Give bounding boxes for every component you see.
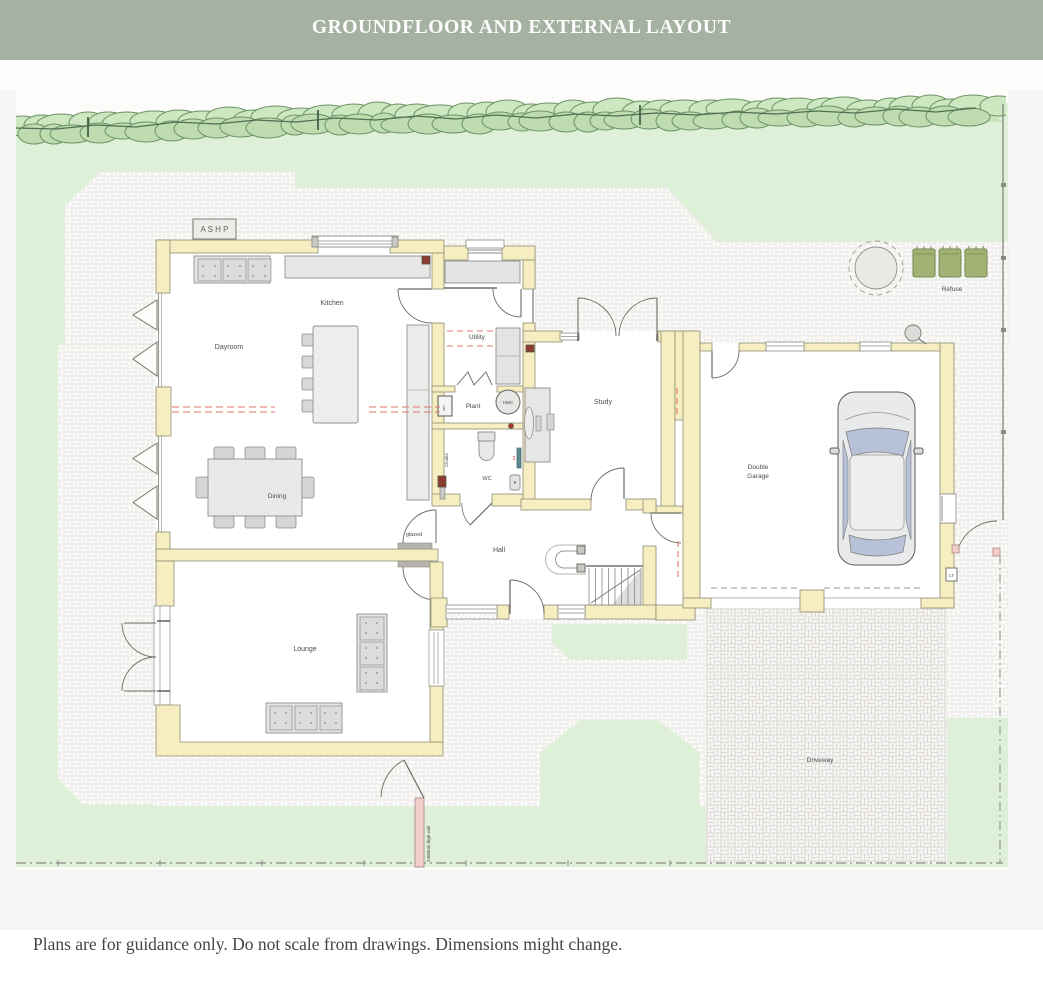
svg-text:WC: WC (482, 476, 491, 482)
svg-text:Lounge: Lounge (293, 646, 316, 653)
svg-text:A S H P: A S H P (200, 225, 228, 234)
svg-text:Utility: Utility (469, 334, 486, 341)
svg-text:Double: Double (748, 464, 769, 471)
svg-text:glazed: glazed (406, 532, 422, 538)
svg-text:2: 2 (513, 456, 516, 462)
svg-text:Study: Study (594, 399, 612, 406)
svg-text:Dayroom: Dayroom (215, 344, 244, 351)
svg-text:Refuse: Refuse (942, 286, 963, 293)
svg-text:Dining: Dining (268, 493, 287, 500)
svg-text:Garage: Garage (747, 473, 769, 480)
svg-text:Kitchen: Kitchen (320, 300, 343, 307)
svg-text:2400mm high wall: 2400mm high wall (426, 826, 431, 862)
svg-text:Plant: Plant (466, 403, 481, 410)
svg-text:HWC: HWC (503, 400, 514, 405)
svg-text:Driveway: Driveway (807, 757, 834, 764)
svg-text:LT: LT (949, 573, 954, 578)
svg-text:a/c: a/c (441, 405, 446, 410)
svg-text:Hall: Hall (493, 547, 506, 554)
svg-text:Cloaks: Cloaks (444, 452, 449, 467)
